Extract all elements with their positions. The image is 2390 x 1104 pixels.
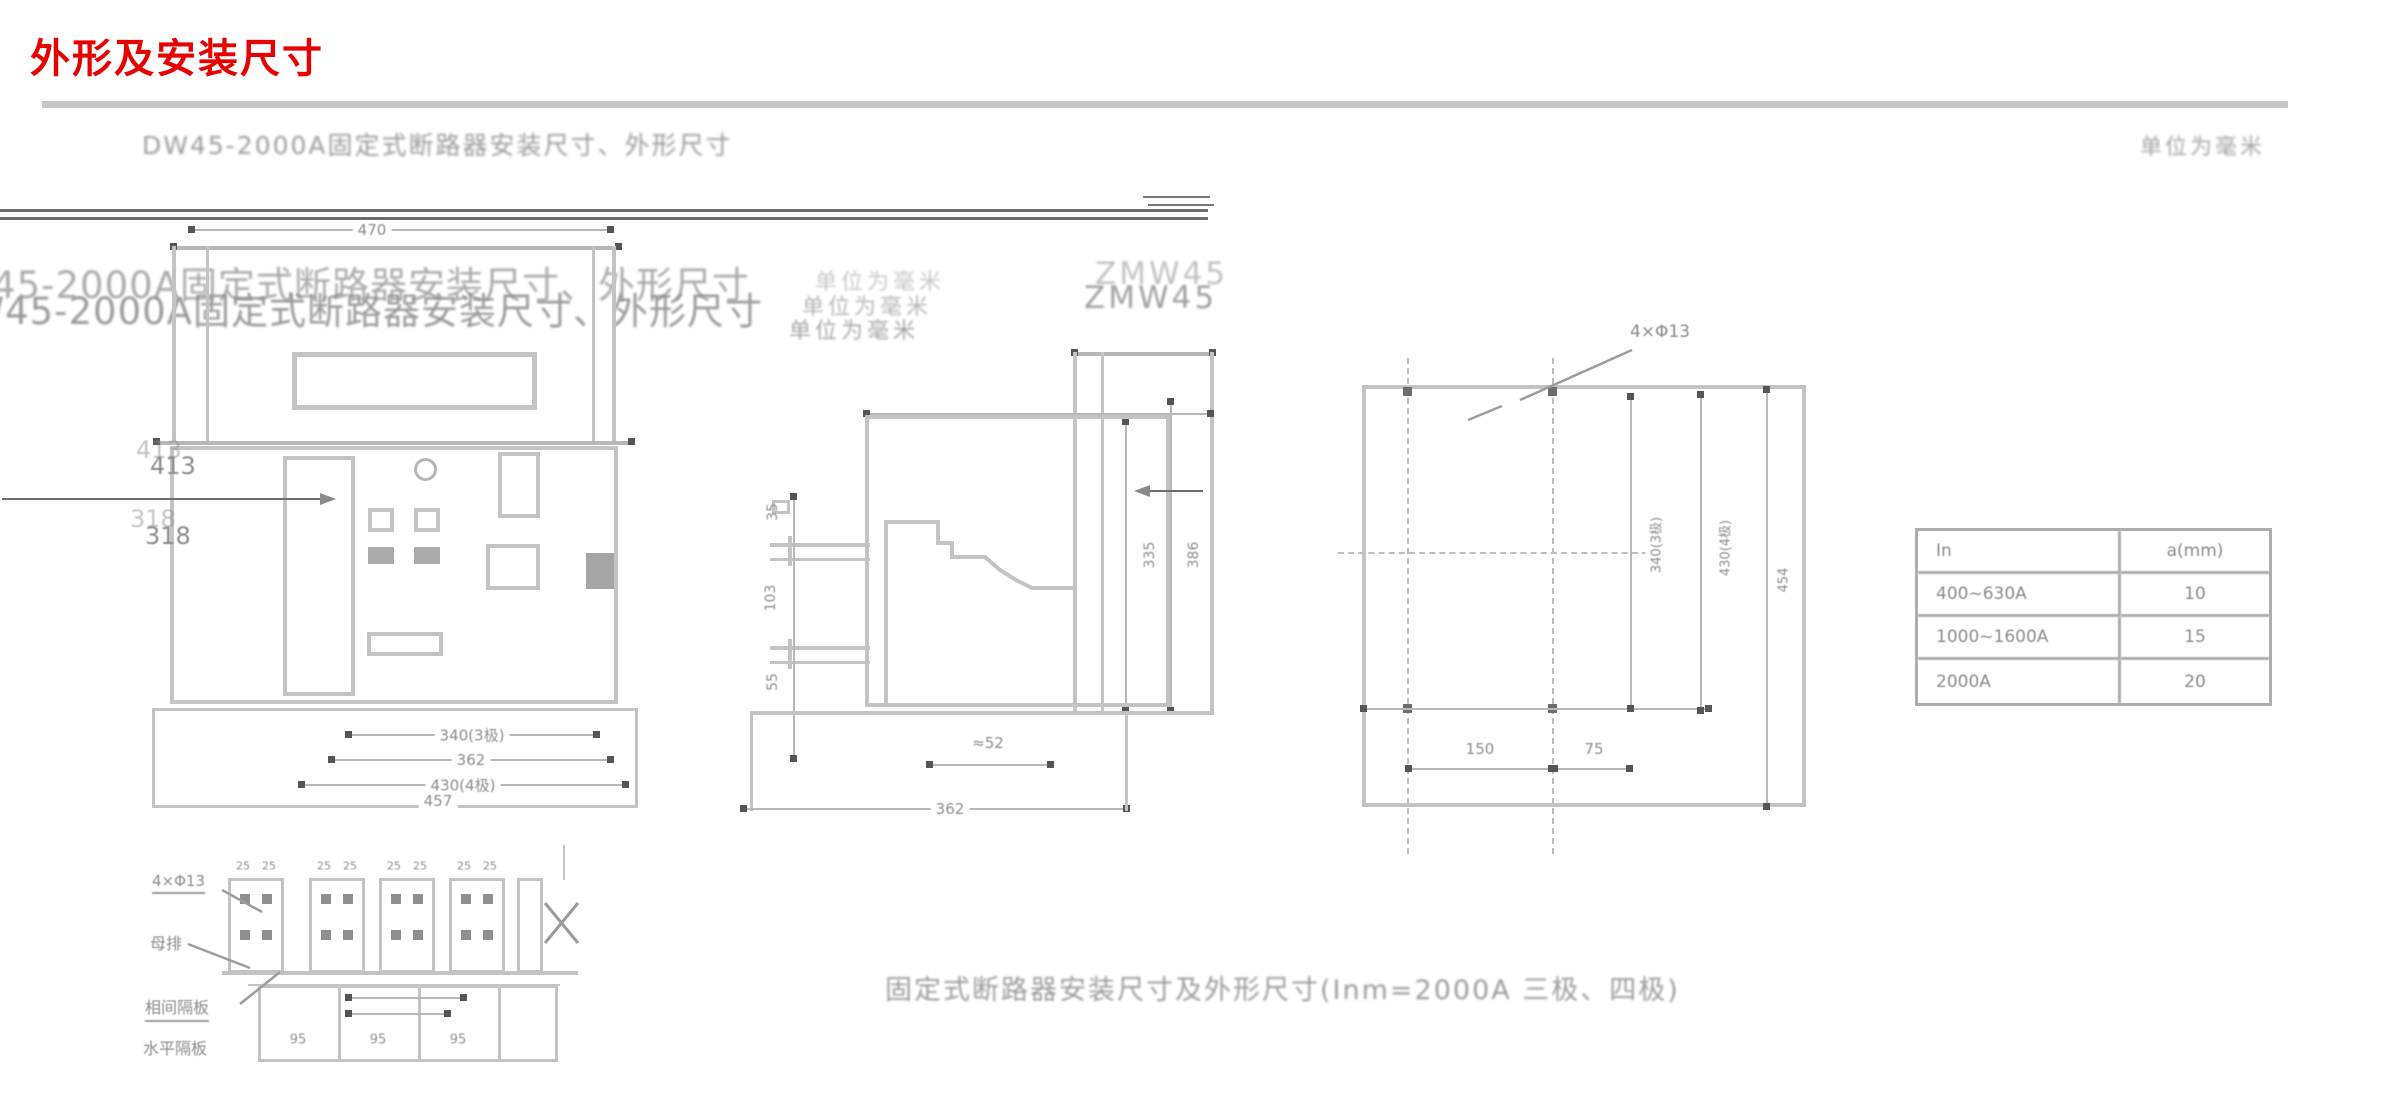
dim-label-pitch: 150 [1461,740,1500,758]
dim-label-mount-3p: 340(3极) [435,725,510,746]
double-rule-bottom [0,217,1208,220]
left-panel-column [283,456,355,696]
base-plate-label: 水平隔板 [143,1035,207,1059]
cross-mark-icon [545,903,578,943]
panel-button [368,547,394,564]
terminal-hole [413,894,423,904]
dim-label-hole-pitch: 25 [408,860,432,873]
terminal-hole [321,894,331,904]
table-cell: 2000A [1918,660,2121,703]
frame-line [1210,352,1214,715]
terminal-bar [770,543,870,547]
dim-line [190,229,612,231]
arc-chute-window [292,352,537,410]
dim-line [1553,768,1631,770]
dim-label-hole-pitch: 25 [231,860,255,873]
page-title: 外形及安装尺寸 [30,26,324,84]
dim-line [1700,393,1702,712]
side-body [865,415,1170,707]
base-line [750,711,753,811]
top-bar [172,246,620,250]
table-cell: 20 [2121,660,2269,703]
barrier-label: 相间隔板 [145,994,209,1022]
dim-line [1407,768,1553,770]
busbar-label: 母排 [150,930,182,954]
ghost-unit-note: 单位为毫米 [789,313,919,345]
dim-label-hole-pitch: 25 [382,860,406,873]
dim-label-overall: 457 [419,792,458,810]
dim-label-width: 362 [452,751,491,769]
centerline [1407,358,1409,854]
table-header-in: In [1918,531,2121,574]
frame-line [172,246,176,445]
dim-label-overall: 454 [1777,563,1792,598]
frame-line [592,246,595,445]
breaker-base [152,708,638,808]
terminal-pole [379,878,435,973]
page-subtitle: DW45-2000A固定式断路器安装尺寸、外形尺寸 [142,126,733,162]
terminal-hole [262,930,272,940]
double-rule-top [0,209,1208,212]
terminal-hole [461,930,471,940]
terminal-pole [309,878,365,973]
detail-hole-label: 4×Φ13 [152,872,205,894]
dim-line [793,495,795,760]
terminal-clamp [788,536,792,566]
centerline [1552,358,1554,854]
dim-label-hole-pitch: 25 [478,860,502,873]
dim-label: 35 [765,498,781,526]
busbar-line [222,971,578,975]
terminal-hole [262,894,272,904]
dim-label-hole-pitch: 25 [257,860,281,873]
rear-frame-top [1073,352,1214,356]
centerline [1338,552,1648,554]
hole-row-line [1362,708,1710,710]
dim-label-depth: 362 [931,800,970,818]
base-line [750,711,1213,715]
frame-line [206,246,209,445]
dim-line [347,1013,449,1015]
terminal-bar [770,646,870,650]
ghost-heading: DW45-2000A固定式断路器安装尺寸、外形尺寸 [0,281,763,335]
dim-line [1630,395,1632,710]
terminal-hole [343,930,353,940]
dim-label: 55 [765,668,781,696]
dim-label-hole-pitch: 25 [338,860,362,873]
dim-label-offset: 75 [1579,740,1608,758]
dim-label-height: 413 [150,452,196,480]
mid-bar [155,441,633,445]
panel-window [486,544,540,590]
breaker-body [170,446,618,704]
dim-label-hole-pitch: 25 [312,860,336,873]
dim-label-mount-3p: 340(3极) [1646,512,1665,578]
dim-label-height2: 318 [145,522,191,550]
section-rule [42,101,2288,108]
pole-divider [338,985,341,1062]
terminal-hole [483,894,493,904]
mounting-hole [1403,387,1412,396]
ghost-model-code: ZMW45 [1084,280,1217,316]
drawing-caption: 固定式断路器安装尺寸及外形尺寸(Inm=2000A 三极、四极) [885,968,1680,1007]
terminal-clamp [788,639,792,669]
terminal-hole [343,894,353,904]
terminal-hole [240,894,250,904]
table-header-a: a(mm) [2121,531,2269,574]
table-cell: 1000~1600A [1918,617,2121,660]
document-page: 外形及安装尺寸 DW45-2000A固定式断路器安装尺寸、外形尺寸 单位为毫米 … [0,0,2390,1104]
dim-line [1766,388,1768,808]
panel-button [414,508,440,532]
terminal-hole [321,930,331,940]
dim-line [1170,400,1172,712]
terminal-pole [449,878,505,973]
dim-line [928,764,1052,766]
mounting-hole [1548,387,1557,396]
dim-label-mount-4p: 430(4极) [1715,515,1734,581]
terminal-pole-aux [517,878,543,973]
double-rule-short-1 [1143,196,1210,198]
dim-label-gap: ≈52 [967,734,1009,752]
terminal-hole [483,930,493,940]
double-rule-short-2 [1148,204,1214,206]
dim-label-pole-pitch: 95 [445,1033,472,1048]
dim-line [347,997,465,999]
dim-label-pole-pitch: 95 [365,1033,392,1048]
base-line [1125,711,1128,811]
dim-label: 103 [763,580,779,617]
panel-button [368,508,394,532]
indicator-circle [414,458,437,481]
cross-mark-icon [545,903,578,943]
table-cell: 400~630A [1918,574,2121,617]
panel-button [414,547,440,564]
dim-label-overall-width: 470 [353,221,392,239]
terminal-hole [240,930,250,940]
terminal-hole [391,930,401,940]
terminal-hole [413,930,423,940]
frame-line [563,845,565,880]
table-cell: 10 [2121,574,2269,617]
hole-count-label: 4×Φ13 [1630,322,1690,342]
terminal-hole [461,894,471,904]
table-cell: 15 [2121,617,2269,660]
terminal-bar [770,558,870,561]
dim-label-hole-pitch: 25 [452,860,476,873]
panel-patch [586,553,614,589]
dim-label-depth-outer: 386 [1186,537,1202,574]
terminal-pole [228,878,284,973]
pole-divider [498,985,501,1062]
dim-label-pole-pitch: 95 [285,1033,312,1048]
terminal-bar [770,661,870,664]
panel-window [498,452,540,518]
nameplate [367,632,443,656]
busbar-spec-table: In a(mm) 400~630A 10 1000~1600A 15 2000A… [1915,528,2272,706]
unit-note: 单位为毫米 [2140,129,2265,161]
frame-line [612,246,616,445]
terminal-hole [391,894,401,904]
